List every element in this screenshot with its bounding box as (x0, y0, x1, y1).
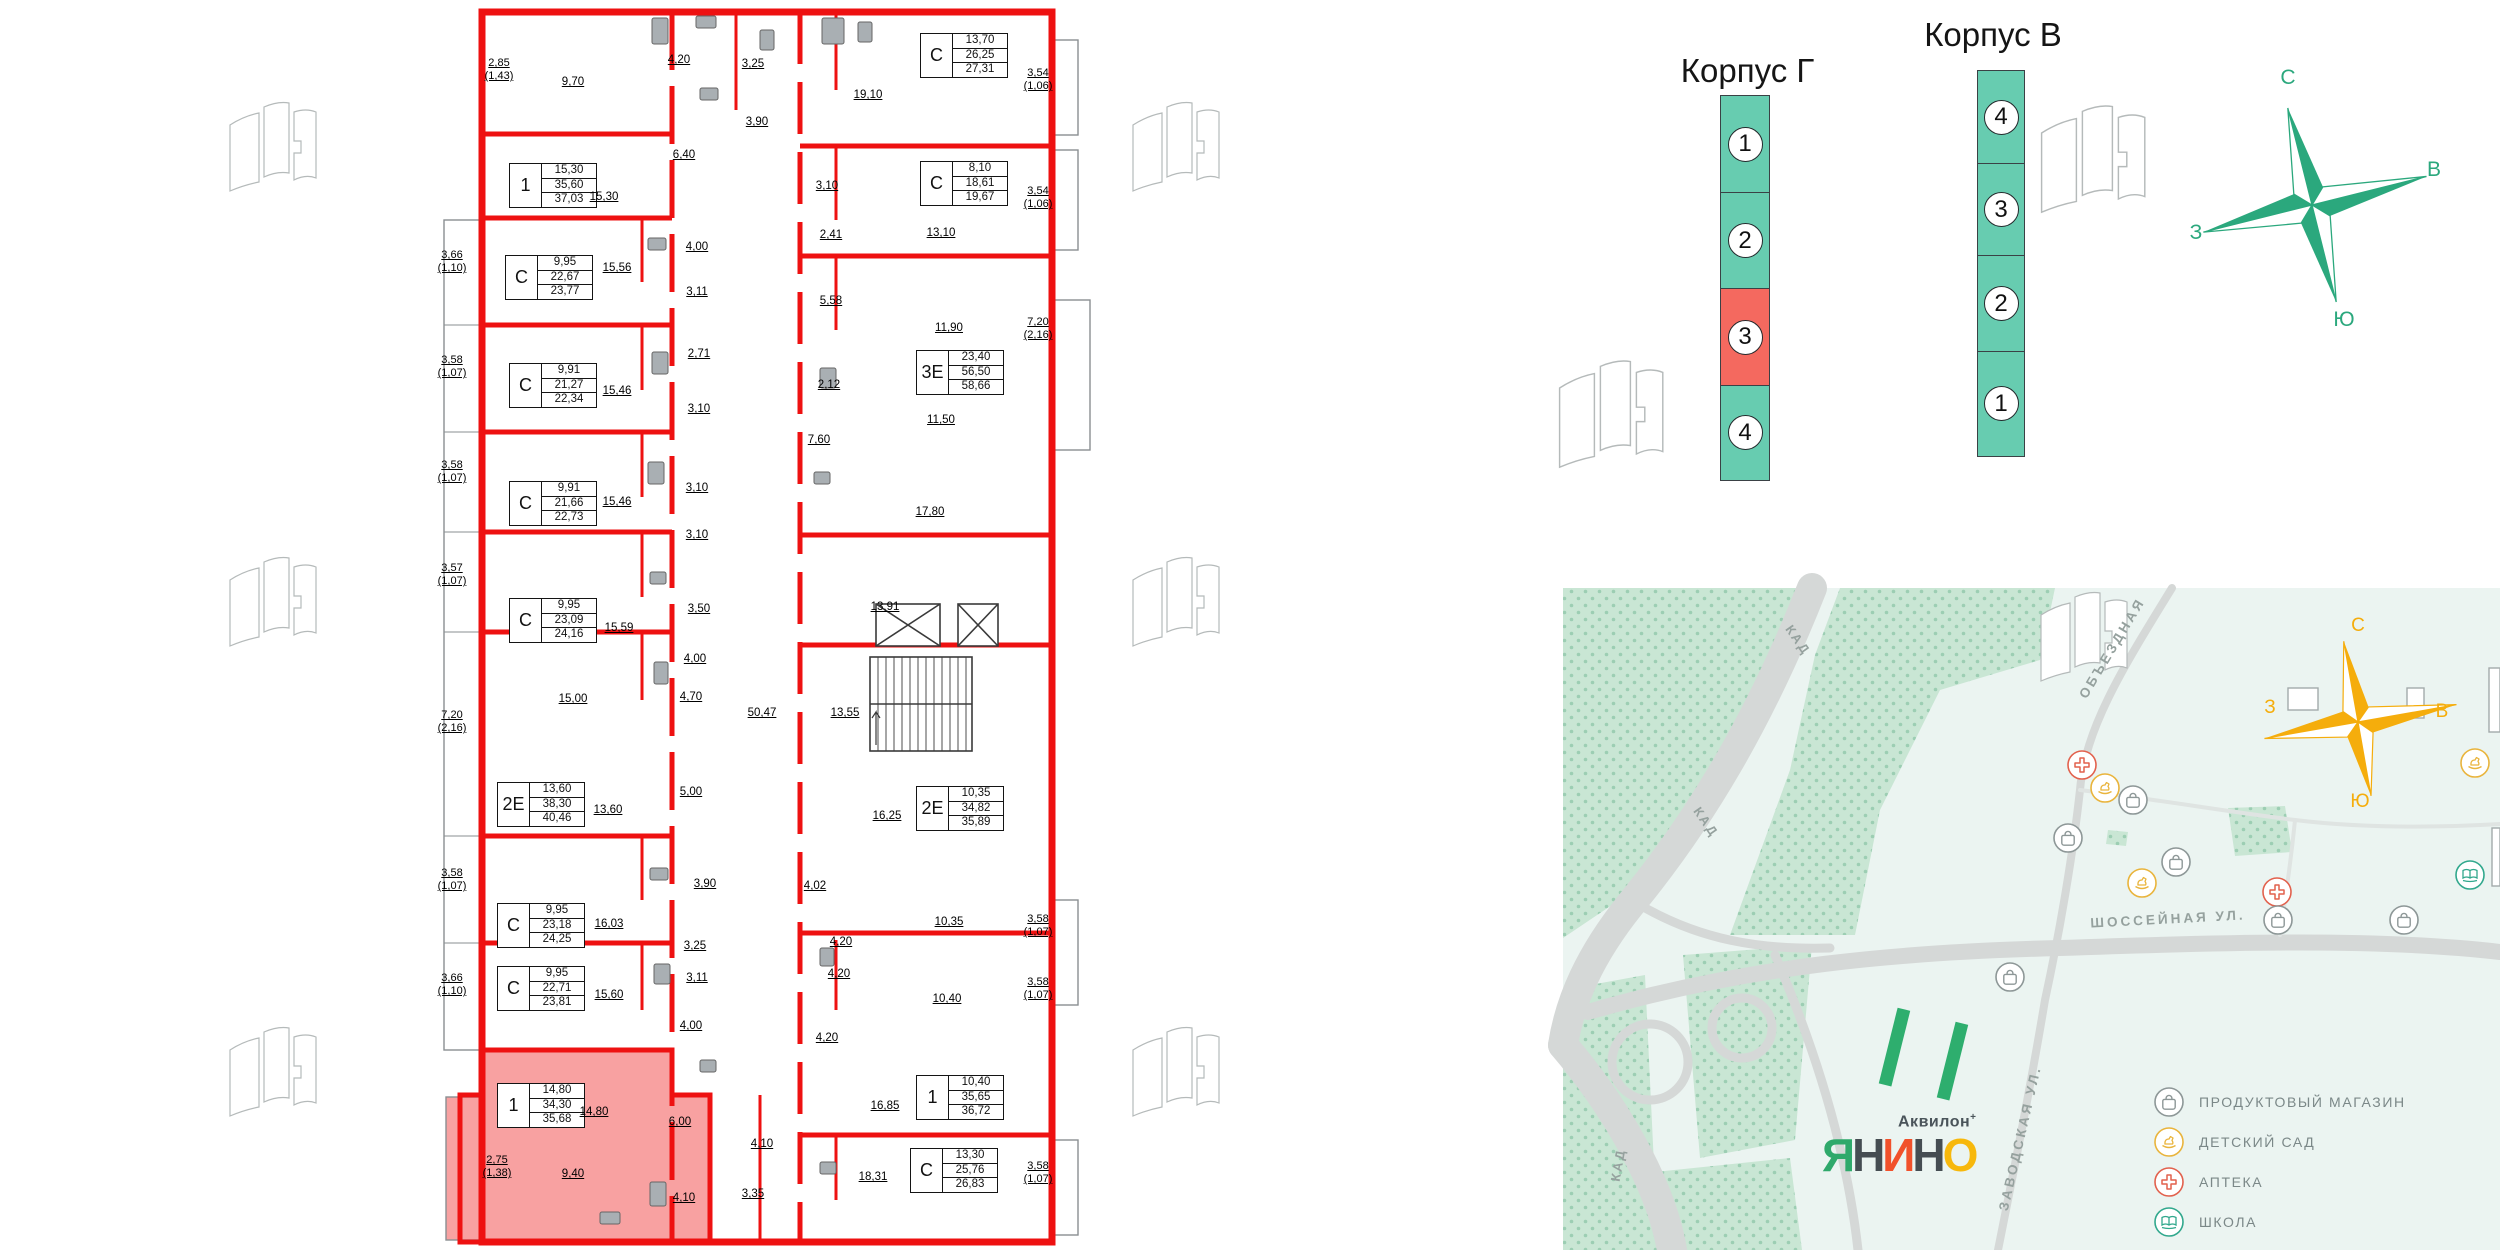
apartment-type: 1 (510, 164, 542, 207)
room-area-label: 16,03 (595, 918, 624, 930)
compass-east-label: В (2436, 701, 2449, 723)
compass-south-label: Ю (2350, 791, 2369, 813)
apartment-type: С (911, 1149, 943, 1192)
room-area-label: 3,11 (686, 286, 708, 298)
apartment-info-box[interactable]: С9,9522,6723,77 (505, 255, 593, 300)
room-area-label: 3,25 (684, 940, 706, 952)
brand-plus: + (1970, 1112, 1976, 1123)
room-area-label: 9,40 (562, 1168, 584, 1180)
room-area-label: 15,59 (605, 622, 634, 634)
apartment-areas: 9,9121,6622,73 (542, 482, 596, 525)
apartment-type: 1 (917, 1076, 949, 1119)
section-3[interactable]: 3 (1977, 163, 2025, 257)
room-area-label: 15,00 (559, 693, 588, 705)
room-area-label: 4,20 (830, 936, 852, 948)
section-4[interactable]: 4 (1977, 70, 2025, 164)
dimension-label: 3,54(1,06) (1024, 67, 1053, 93)
apartment-areas: 15,3035,6037,03 (542, 164, 596, 207)
compass-north-label: С (2351, 615, 2365, 637)
logo-yanino: ЯНИНО (1822, 1128, 1975, 1182)
room-area-label: 4,00 (680, 1020, 702, 1032)
logo-letter: О (1943, 1129, 1976, 1181)
korpus-v-title: Корпус В (1898, 16, 2088, 54)
poi-school-icon (2456, 861, 2484, 889)
apartment-info-box[interactable]: С8,1018,6119,67 (920, 161, 1008, 206)
section-number: 3 (1984, 192, 2019, 227)
apartment-info-box[interactable]: 110,4035,6536,72 (916, 1075, 1004, 1120)
room-area-label: 2,71 (688, 348, 710, 360)
room-area-label: 4,00 (684, 653, 706, 665)
poi-pharmacy-icon (2068, 751, 2096, 779)
apartment-type: С (510, 482, 542, 525)
room-area-label: 13,10 (927, 227, 956, 239)
dimension-label: 7,20(2,16) (1024, 316, 1053, 342)
section-number: 2 (1728, 223, 1763, 258)
room-area-label: 13,60 (594, 804, 623, 816)
room-area-label: 3,10 (816, 180, 838, 192)
apartment-info-box[interactable]: 3Е23,4056,5058,66 (916, 350, 1004, 395)
school-icon (2152, 1205, 2186, 1239)
dimension-label: 3,66(1,10) (438, 972, 467, 998)
room-area-label: 11,90 (935, 322, 963, 334)
legend-label: ШКОЛА (2199, 1214, 2257, 1230)
room-area-label: 11,50 (927, 414, 955, 426)
room-area-label: 4,20 (668, 54, 690, 66)
korpus-g-strip: 1234 (1720, 97, 1770, 481)
logo-letter: Н (1912, 1129, 1942, 1181)
compass-west-label: З (2190, 221, 2203, 245)
room-area-label: 17,80 (916, 506, 945, 518)
room-area-label: 4,70 (680, 691, 702, 703)
section-3[interactable]: 3 (1720, 288, 1770, 386)
apartment-type: С (510, 364, 542, 407)
apartment-info-box[interactable]: С9,9523,1824,25 (497, 903, 585, 948)
legend-row: ПРОДУКТОВЫЙ МАГАЗИН (2152, 1085, 2406, 1119)
apartment-areas: 10,4035,6536,72 (949, 1076, 1003, 1119)
section-1[interactable]: 1 (1720, 95, 1770, 193)
room-area-label: 13,55 (831, 707, 860, 719)
dimension-label: 2,75(1,38) (483, 1154, 512, 1180)
dimension-label: 3,58(1,07) (438, 354, 467, 380)
shop-icon (2152, 1085, 2186, 1119)
apartment-info-box[interactable]: С9,9121,2722,34 (509, 363, 597, 408)
dimension-label: 7,20(2,16) (438, 709, 467, 735)
apartment-type: С (506, 256, 538, 299)
logo-letter: Я (1822, 1129, 1852, 1181)
compass-green (2179, 79, 2451, 329)
section-2[interactable]: 2 (1720, 192, 1770, 290)
apartment-areas: 13,7026,2527,31 (953, 34, 1007, 77)
room-area-label: 4,00 (686, 241, 708, 253)
room-area-label: 7,60 (808, 434, 830, 446)
apartment-type: 2Е (917, 787, 949, 830)
section-number: 4 (1728, 415, 1763, 450)
pharmacy-icon (2152, 1165, 2186, 1199)
dimension-label: 3,58(1,07) (1024, 1160, 1053, 1186)
apartment-areas: 9,9523,1824,25 (530, 904, 584, 947)
room-area-label: 2,41 (820, 229, 842, 241)
dimension-label: 3,54(1,06) (1024, 185, 1053, 211)
room-area-label: 6,00 (669, 1116, 691, 1128)
legend-row: ДЕТСКИЙ САД (2152, 1125, 2315, 1159)
section-number: 2 (1984, 286, 2019, 321)
kindergarten-icon (2152, 1125, 2186, 1159)
room-area-label: 3,10 (686, 529, 708, 541)
apartment-type: С (921, 162, 953, 205)
room-area-label: 3,50 (688, 603, 710, 615)
apartment-info-box[interactable]: С9,9523,0924,16 (509, 598, 597, 643)
apartment-areas: 13,3025,7626,83 (943, 1149, 997, 1192)
section-number: 1 (1728, 127, 1763, 162)
room-area-label: 5,58 (820, 295, 842, 307)
section-number: 3 (1728, 320, 1763, 355)
apartment-info-box[interactable]: 114,8034,3035,68 (497, 1083, 585, 1128)
apartment-areas: 9,9522,6723,77 (538, 256, 592, 299)
apartment-areas: 14,8034,3035,68 (530, 1084, 584, 1127)
apartment-info-box[interactable]: 2Е13,6038,3040,46 (497, 782, 585, 827)
apartment-areas: 9,9522,7123,81 (530, 967, 584, 1010)
section-4[interactable]: 4 (1720, 385, 1770, 481)
room-area-label: 4,10 (751, 1138, 773, 1150)
room-area-label: 3,25 (742, 58, 764, 70)
dimension-label: 2,85(1,43) (485, 57, 514, 83)
poi-shop-icon (2264, 906, 2292, 934)
poi-kindergarten-icon (2091, 774, 2119, 802)
apartment-type: С (510, 599, 542, 642)
room-area-label: 2,12 (818, 379, 840, 391)
logo-letter: И (1882, 1129, 1912, 1181)
room-area-label: 10,40 (933, 993, 962, 1005)
room-area-label: 15,60 (595, 989, 624, 1001)
room-area-label: 16,85 (871, 1100, 900, 1112)
apartment-info-box[interactable]: С13,7026,2527,31 (920, 33, 1008, 78)
compass-west-label: З (2264, 697, 2275, 719)
apartment-info-box[interactable]: 115,3035,6037,03 (509, 163, 597, 208)
dimension-label: 3,57(1,07) (438, 562, 467, 588)
legend-row: ШКОЛА (2152, 1205, 2257, 1239)
compass-east-label: В (2427, 158, 2441, 182)
apartment-type: С (498, 904, 530, 947)
legend-row: АПТЕКА (2152, 1165, 2263, 1199)
room-area-label: 15,56 (603, 262, 632, 274)
apartment-info-box[interactable]: С13,3025,7626,83 (910, 1148, 998, 1193)
stairs (870, 657, 972, 751)
apartment-areas: 9,9121,2722,34 (542, 364, 596, 407)
apartment-areas: 23,4056,5058,66 (949, 351, 1003, 394)
legend-label: ПРОДУКТОВЫЙ МАГАЗИН (2199, 1094, 2406, 1110)
room-area-label: 4,20 (828, 968, 850, 980)
poi-kindergarten-icon (2461, 749, 2489, 777)
room-area-label: 3,35 (742, 1188, 764, 1200)
room-area-label: 13,91 (871, 601, 900, 613)
room-area-label: 4,10 (673, 1192, 695, 1204)
apartment-type: С (921, 34, 953, 77)
poi-shop-icon (2054, 824, 2082, 852)
poi-shop-icon (2390, 906, 2418, 934)
dimension-label: 3,58(1,07) (438, 459, 467, 485)
poi-pharmacy-icon (2263, 878, 2291, 906)
room-area-label: 15,46 (603, 385, 632, 397)
legend-label: АПТЕКА (2199, 1174, 2263, 1190)
dimension-label: 3,66(1,10) (438, 249, 467, 275)
apartment-type: 3Е (917, 351, 949, 394)
legend-label: ДЕТСКИЙ САД (2199, 1134, 2315, 1150)
room-area-label: 3,10 (686, 482, 708, 494)
poi-shop-icon (2119, 786, 2147, 814)
dimension-label: 3,58(1,07) (1024, 913, 1053, 939)
apartment-type: 2Е (498, 783, 530, 826)
room-area-label: 3,11 (686, 972, 708, 984)
korpus-v-strip: 4321 (1977, 72, 2025, 457)
room-area-label: 14,80 (580, 1106, 609, 1118)
poi-shop-icon (1996, 963, 2024, 991)
compass-north-label: С (2280, 66, 2295, 90)
compass-south-label: Ю (2333, 308, 2354, 332)
apartment-type: 1 (498, 1084, 530, 1127)
apartment-areas: 8,1018,6119,67 (953, 162, 1007, 205)
room-area-label: 10,35 (935, 916, 964, 928)
dimension-label: 3,58(1,07) (438, 867, 467, 893)
poi-kindergarten-icon (2128, 869, 2156, 897)
room-area-label: 5,00 (680, 786, 702, 798)
logo-letter: Н (1852, 1129, 1882, 1181)
poi-shop-icon (2162, 848, 2190, 876)
room-area-label: 4,02 (804, 880, 826, 892)
dimension-label: 3,58(1,07) (1024, 976, 1053, 1002)
room-area-label: 16,25 (873, 810, 902, 822)
section-number: 1 (1984, 386, 2019, 421)
korpus-g-title: Корпус Г (1660, 52, 1835, 90)
room-area-label: 50,47 (748, 707, 777, 719)
room-area-label: 15,30 (590, 191, 619, 203)
room-area-label: 3,90 (746, 116, 768, 128)
apartment-info-box[interactable]: С9,9121,6622,73 (509, 481, 597, 526)
room-area-label: 3,10 (688, 403, 710, 415)
room-area-label: 4,20 (816, 1032, 838, 1044)
apartment-info-box[interactable]: С9,9522,7123,81 (497, 966, 585, 1011)
section-1[interactable]: 1 (1977, 351, 2025, 457)
room-area-label: 3,90 (694, 878, 716, 890)
section-2[interactable]: 2 (1977, 255, 2025, 352)
room-area-label: 19,10 (854, 89, 883, 101)
apartment-areas: 13,6038,3040,46 (530, 783, 584, 826)
room-area-label: 6,40 (673, 149, 695, 161)
room-area-label: 18,31 (859, 1171, 888, 1183)
section-number: 4 (1984, 100, 2019, 135)
apartment-type: С (498, 967, 530, 1010)
apartment-info-box[interactable]: 2Е10,3534,8235,89 (916, 786, 1004, 831)
room-area-label: 15,46 (603, 496, 632, 508)
apartment-areas: 10,3534,8235,89 (949, 787, 1003, 830)
apartment-areas: 9,9523,0924,16 (542, 599, 596, 642)
room-area-label: 9,70 (562, 76, 584, 88)
